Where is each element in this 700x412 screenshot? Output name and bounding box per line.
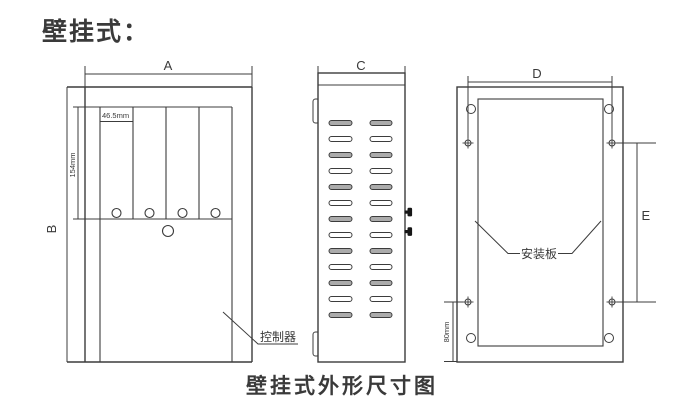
dim-label-154: 154mm (68, 152, 77, 177)
vent-slot (370, 185, 392, 190)
vent-slot (329, 281, 352, 286)
vent-slot (370, 265, 392, 270)
vent-slot (329, 217, 352, 222)
vent-slot (370, 201, 392, 206)
side-view-panel: C (313, 58, 412, 362)
module-hole (211, 209, 220, 218)
vent-slot (370, 249, 392, 254)
dim-label-c: C (356, 58, 365, 73)
vent-slot (329, 313, 352, 318)
mounting-hole (605, 334, 614, 343)
plate-label: 安装板 (521, 246, 557, 261)
back-view-mounting: D E 80mm 安装板 (442, 66, 656, 362)
module-hole (178, 209, 187, 218)
vent-slot (329, 265, 352, 270)
vent-slot (329, 121, 352, 126)
dim-label-80: 80mm (442, 322, 451, 343)
dim-label-46-5: 46.5mm (102, 111, 129, 120)
vent-slot (329, 185, 352, 190)
vent-slot (329, 297, 352, 302)
dimension-drawing: 壁挂式： A B (0, 0, 700, 412)
vent-slot (370, 281, 392, 286)
vent-slot (370, 297, 392, 302)
vent-slot (329, 201, 352, 206)
dim-label-a: A (164, 58, 173, 73)
vent-slot (370, 169, 392, 174)
page-title: 壁挂式： (42, 17, 150, 46)
dim-label-b: B (44, 225, 59, 234)
vent-slot (370, 153, 392, 158)
vent-slot (370, 313, 392, 318)
vent-slot (370, 217, 392, 222)
vent-slot (329, 169, 352, 174)
vent-slot (370, 121, 392, 126)
vent-slot (370, 233, 392, 238)
drawing-caption: 壁挂式外形尺寸图 (246, 374, 438, 398)
vent-slot (329, 233, 352, 238)
dim-label-d: D (532, 66, 541, 81)
front-view-controller: A B 154mm 46.5mm 控制器 (44, 58, 298, 362)
module-slots (112, 107, 220, 219)
controller-label: 控制器 (260, 330, 296, 344)
center-hole (163, 226, 174, 237)
vent-slot (329, 249, 352, 254)
drawing-page: 壁挂式： A B (0, 0, 700, 412)
dim-label-e: E (642, 208, 651, 223)
vent-slot (370, 137, 392, 142)
module-hole (112, 209, 121, 218)
vent-slot (329, 137, 352, 142)
module-hole (145, 209, 154, 218)
vent-slot (329, 153, 352, 158)
mounting-hole (467, 334, 476, 343)
